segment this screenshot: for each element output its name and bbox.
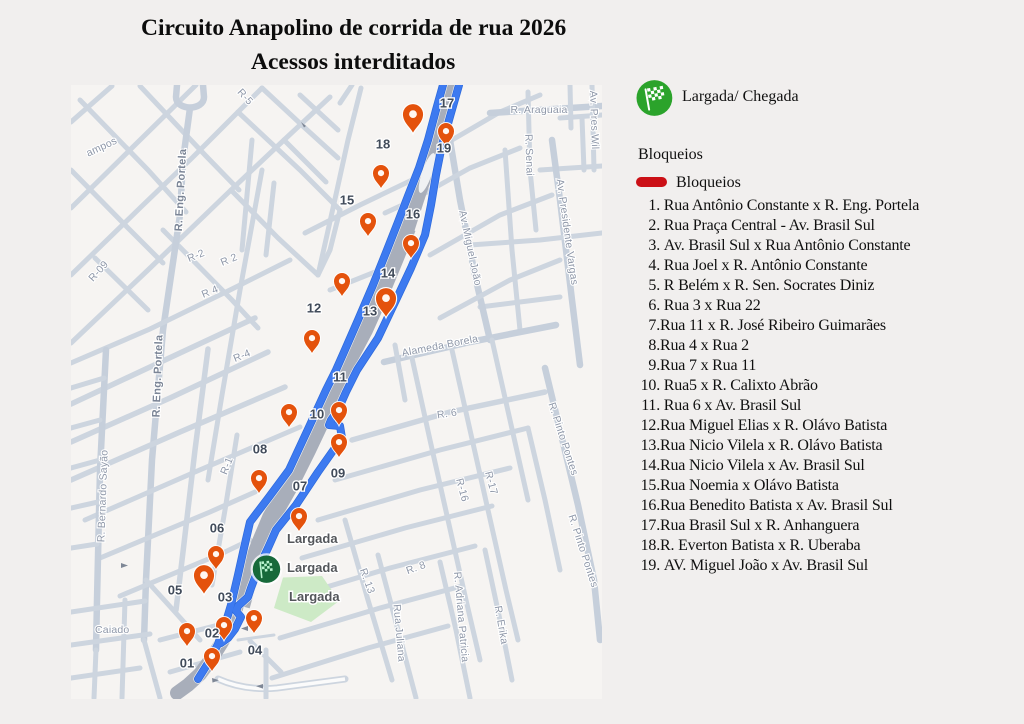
svg-text:Av. Pres Wil: Av. Pres Wil — [587, 91, 601, 150]
svg-text:Caiado: Caiado — [95, 624, 129, 636]
svg-text:02: 02 — [205, 626, 219, 641]
svg-text:18: 18 — [376, 137, 390, 152]
svg-text:13: 13 — [363, 304, 377, 319]
svg-text:09: 09 — [331, 466, 345, 481]
svg-text:04: 04 — [248, 643, 263, 658]
svg-text:15: 15 — [340, 193, 354, 208]
svg-text:Largada: Largada — [287, 531, 338, 546]
svg-text:R. Araguaia: R. Araguaia — [510, 104, 567, 116]
svg-text:01: 01 — [180, 656, 194, 671]
svg-text:14: 14 — [381, 266, 396, 281]
svg-text:16: 16 — [406, 207, 420, 222]
svg-text:07: 07 — [293, 479, 307, 494]
svg-text:Largada: Largada — [289, 589, 340, 604]
svg-text:17: 17 — [440, 96, 454, 111]
svg-text:19: 19 — [437, 141, 451, 156]
svg-text:R. Senai: R. Senai — [522, 134, 535, 176]
svg-text:Largada: Largada — [287, 560, 338, 575]
svg-text:12: 12 — [307, 301, 321, 316]
svg-text:06: 06 — [210, 521, 224, 536]
svg-text:11: 11 — [333, 370, 347, 385]
svg-text:10: 10 — [310, 407, 324, 422]
svg-text:05: 05 — [168, 583, 182, 598]
svg-text:03: 03 — [218, 590, 232, 605]
svg-text:08: 08 — [253, 442, 267, 457]
